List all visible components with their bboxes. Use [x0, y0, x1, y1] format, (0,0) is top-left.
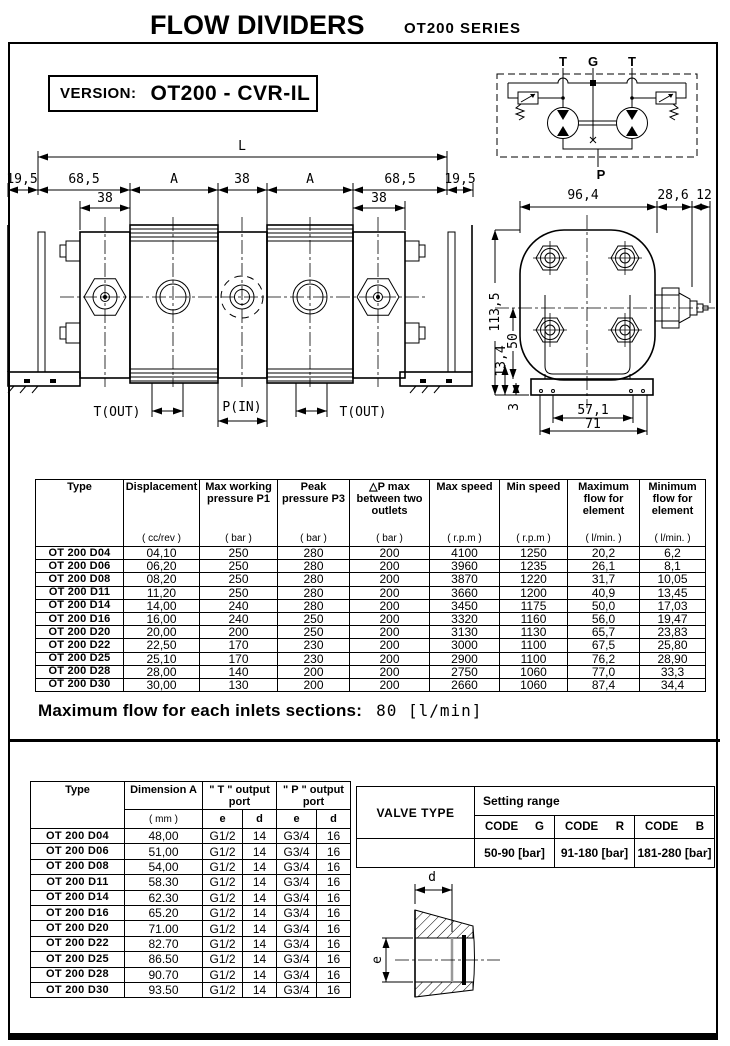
table-cell: G3/4 — [277, 967, 317, 982]
table-cell: G1/2 — [203, 829, 243, 844]
range-r-cell: 91-180 [bar] — [555, 839, 635, 868]
table-cell: G1/2 — [203, 952, 243, 967]
port-label-t-out-right: T(OUT) — [340, 405, 387, 420]
table-row: OT 200 D0808,202502802003870122031,710,0… — [36, 573, 706, 586]
table-cell: G1/2 — [203, 890, 243, 905]
table-cell: 20,2 — [568, 547, 640, 560]
table-cell: G3/4 — [277, 890, 317, 905]
table-cell: 3870 — [430, 573, 500, 586]
table-cell: 65,7 — [568, 626, 640, 639]
table-row: OT 200 D0651,00G1/214G3/416 — [31, 844, 351, 859]
table-cell: G3/4 — [277, 952, 317, 967]
code-g-cell: CODEG — [475, 816, 555, 839]
table-cell: 28,00 — [124, 665, 200, 678]
table-cell: 3320 — [430, 612, 500, 625]
dim-28-6: 28,6 — [657, 188, 688, 203]
table-cell: OT 200 D04 — [36, 547, 124, 560]
table-cell: OT 200 D30 — [36, 678, 124, 691]
dim-68-5-left: 68,5 — [68, 172, 99, 187]
schematic-port-p: P — [597, 167, 606, 182]
table-cell: 76,2 — [568, 652, 640, 665]
table-cell: 200 — [350, 626, 430, 639]
side-view-drawing: 96,4 28,6 12 — [483, 183, 723, 448]
table-cell: G1/2 — [203, 921, 243, 936]
table-cell: 30,00 — [124, 678, 200, 691]
table-cell: OT 200 D28 — [31, 967, 125, 982]
table-cell: OT 200 D30 — [31, 982, 125, 997]
table-cell: 14 — [243, 844, 277, 859]
table-cell: OT 200 D11 — [36, 586, 124, 599]
table-cell: 33,3 — [640, 665, 706, 678]
table-cell: 28,90 — [640, 652, 706, 665]
dim-68-5-right: 68,5 — [384, 172, 415, 187]
table-cell: OT 200 D28 — [36, 665, 124, 678]
table-cell: 250 — [200, 560, 278, 573]
table-cell: 65.20 — [125, 905, 203, 920]
table-cell: 16,00 — [124, 612, 200, 625]
table-cell: 40,9 — [568, 586, 640, 599]
table-cell: G3/4 — [277, 982, 317, 997]
table-cell: 16 — [317, 952, 351, 967]
table-cell: 2660 — [430, 678, 500, 691]
series-title: OT200 SERIES — [404, 20, 521, 37]
table-cell: G3/4 — [277, 844, 317, 859]
dim-col-mm: ( mm ) — [125, 810, 203, 829]
table-row: OT 200 D3093.50G1/214G3/416 — [31, 982, 351, 997]
valve-type-title: VALVE TYPE — [357, 787, 475, 839]
table-cell: OT 200 D20 — [36, 626, 124, 639]
range-b-cell: 181-280 [bar] — [635, 839, 715, 868]
dim-a-left: A — [170, 172, 178, 187]
table-cell: 1060 — [500, 665, 568, 678]
table-cell: OT 200 D11 — [31, 875, 125, 890]
table-cell: 14 — [243, 905, 277, 920]
section-divider — [8, 739, 720, 742]
code-b-cell: CODEB — [635, 816, 715, 839]
valve-ranges-row: 50-90 [bar] 91-180 [bar] 181-280 [bar] — [357, 839, 715, 868]
table-cell: OT 200 D08 — [31, 859, 125, 874]
table-cell: 8,1 — [640, 560, 706, 573]
table-row: OT 200 D2222,501702302003000110067,525,8… — [36, 639, 706, 652]
table-cell: 3450 — [430, 599, 500, 612]
table-cell: 170 — [200, 639, 278, 652]
table-cell: OT 200 D04 — [31, 829, 125, 844]
table-cell: 280 — [278, 560, 350, 573]
valve-type-table: VALVE TYPE Setting range CODEG CODER COD… — [356, 786, 715, 868]
table-cell: 250 — [278, 626, 350, 639]
table-cell: 56,0 — [568, 612, 640, 625]
datasheet-page: FLOW DIVIDERS OT200 SERIES VERSION: OT20… — [0, 0, 730, 1046]
table-row: OT 200 D1414,002402802003450117550,017,0… — [36, 599, 706, 612]
table-row: OT 200 D1665.20G1/214G3/416 — [31, 905, 351, 920]
table-cell: 26,1 — [568, 560, 640, 573]
table-cell: 250 — [200, 586, 278, 599]
version-label: VERSION: — [60, 85, 137, 102]
schematic-port-t-right: T — [628, 54, 636, 69]
page-title: FLOW DIVIDERS — [150, 10, 365, 41]
table-cell: 14 — [243, 890, 277, 905]
table-cell: 48,00 — [125, 829, 203, 844]
table-cell: OT 200 D06 — [31, 844, 125, 859]
port-section-drawing: d e — [370, 866, 570, 1021]
col-header-max-working-pressure: Max working pressure P1( bar ) — [200, 480, 278, 547]
max-flow-note: Maximum flow for each inlets sections: 8… — [38, 701, 482, 721]
table-cell: 230 — [278, 652, 350, 665]
table-row: OT 200 D2586.50G1/214G3/416 — [31, 952, 351, 967]
table-cell: 250 — [200, 573, 278, 586]
table-cell: 67,5 — [568, 639, 640, 652]
table-cell: 16 — [317, 982, 351, 997]
table-cell: 62.30 — [125, 890, 203, 905]
table-cell: 4100 — [430, 547, 500, 560]
table-cell: G1/2 — [203, 875, 243, 890]
table-cell: 200 — [350, 547, 430, 560]
dim-113-5: 113,5 — [488, 292, 503, 331]
col-header-min-speed: Min speed( r.p.m ) — [500, 480, 568, 547]
dim-19-5-right: 19,5 — [444, 172, 475, 187]
table-cell: G3/4 — [277, 875, 317, 890]
dim-col-p-d: d — [317, 810, 351, 829]
schematic-port-g: G — [588, 54, 598, 69]
table-cell: 13,45 — [640, 586, 706, 599]
table-row: OT 200 D1111,202502802003660120040,913,4… — [36, 586, 706, 599]
table-cell: 200 — [350, 599, 430, 612]
table-cell: 10,05 — [640, 573, 706, 586]
table-cell: 1220 — [500, 573, 568, 586]
table-cell: OT 200 D14 — [36, 599, 124, 612]
dim-a-right: A — [306, 172, 314, 187]
table-cell: 280 — [278, 586, 350, 599]
table-cell: 170 — [200, 652, 278, 665]
dim-38-left: 38 — [97, 191, 113, 206]
table-cell: 14 — [243, 921, 277, 936]
table-cell: 86.50 — [125, 952, 203, 967]
table-cell: OT 200 D22 — [36, 639, 124, 652]
table-cell: 3000 — [430, 639, 500, 652]
table-cell: 280 — [278, 547, 350, 560]
dim-3: 3 — [507, 403, 522, 411]
table-cell: 20,00 — [124, 626, 200, 639]
table-cell: 1175 — [500, 599, 568, 612]
dim-19-5-left: 19,5 — [6, 172, 37, 187]
table-cell: 16 — [317, 921, 351, 936]
table-cell: OT 200 D14 — [31, 890, 125, 905]
table-cell: 23,83 — [640, 626, 706, 639]
table-cell: 71.00 — [125, 921, 203, 936]
version-box: VERSION: OT200 - CVR-IL — [48, 75, 318, 112]
code-r-cell: CODER — [555, 816, 635, 839]
dim-col-t-port: " T " output port — [203, 782, 277, 810]
table-cell: 22,50 — [124, 639, 200, 652]
spec-table: Type Displacement( cc/rev ) Max working … — [35, 479, 706, 692]
front-view-drawing: L 19,5 68,5 A 38 A 68,5 19,5 38 38 — [0, 135, 480, 447]
table-row: OT 200 D2890.70G1/214G3/416 — [31, 967, 351, 982]
table-cell: 280 — [278, 573, 350, 586]
table-cell: 1100 — [500, 652, 568, 665]
max-flow-note-value: 80 [l/min] — [376, 701, 482, 720]
table-cell: 50,0 — [568, 599, 640, 612]
col-header-max-speed: Max speed( r.p.m ) — [430, 480, 500, 547]
table-cell: 250 — [200, 547, 278, 560]
table-cell: 1235 — [500, 560, 568, 573]
table-row: OT 200 D1616,002402502003320116056,019,4… — [36, 612, 706, 625]
dim-38-right: 38 — [371, 191, 387, 206]
table-cell: 14 — [243, 875, 277, 890]
table-cell: 25,10 — [124, 652, 200, 665]
dim-header-row-1: Type Dimension A " T " output port " P "… — [31, 782, 351, 810]
table-cell: 200 — [350, 586, 430, 599]
dimension-table: Type Dimension A " T " output port " P "… — [30, 781, 351, 998]
table-cell: 200 — [278, 665, 350, 678]
table-cell: 14 — [243, 967, 277, 982]
table-cell: 1060 — [500, 678, 568, 691]
table-row: OT 200 D2828,001402002002750106077,033,3 — [36, 665, 706, 678]
table-cell: 14 — [243, 952, 277, 967]
table-cell: G1/2 — [203, 844, 243, 859]
dim-12: 12 — [696, 188, 712, 203]
table-cell: 200 — [350, 612, 430, 625]
table-cell: OT 200 D25 — [36, 652, 124, 665]
table-cell: 3660 — [430, 586, 500, 599]
range-g-cell: 50-90 [bar] — [475, 839, 555, 868]
table-cell: 77,0 — [568, 665, 640, 678]
table-cell: 200 — [350, 678, 430, 691]
table-row: OT 200 D2525,101702302002900110076,228,9… — [36, 652, 706, 665]
table-cell: G1/2 — [203, 936, 243, 951]
dim-col-p-port: " P " output port — [277, 782, 351, 810]
table-cell: 14 — [243, 859, 277, 874]
table-cell: G3/4 — [277, 921, 317, 936]
table-cell: 230 — [278, 639, 350, 652]
table-row: OT 200 D3030,001302002002660106087,434,4 — [36, 678, 706, 691]
table-cell: 14,00 — [124, 599, 200, 612]
table-cell: 25,80 — [640, 639, 706, 652]
table-cell: 3960 — [430, 560, 500, 573]
table-cell: 04,10 — [124, 547, 200, 560]
table-cell: 19,47 — [640, 612, 706, 625]
table-cell: 200 — [278, 678, 350, 691]
table-cell: 87,4 — [568, 678, 640, 691]
table-cell: G1/2 — [203, 859, 243, 874]
table-cell: 240 — [200, 612, 278, 625]
table-cell: 08,20 — [124, 573, 200, 586]
dim-col-type: Type — [31, 782, 125, 829]
table-cell: 06,20 — [124, 560, 200, 573]
table-row: OT 200 D1158.30G1/214G3/416 — [31, 875, 351, 890]
table-row: OT 200 D0854,00G1/214G3/416 — [31, 859, 351, 874]
table-cell: 200 — [350, 639, 430, 652]
table-cell: G1/2 — [203, 982, 243, 997]
table-cell: 3130 — [430, 626, 500, 639]
dim-col-t-d: d — [243, 810, 277, 829]
col-header-displacement: Displacement( cc/rev ) — [124, 480, 200, 547]
valve-header-row: VALVE TYPE Setting range — [357, 787, 715, 816]
table-cell: 250 — [278, 612, 350, 625]
table-cell: 16 — [317, 875, 351, 890]
col-header-min-flow: Minimum flow for element( l/min. ) — [640, 480, 706, 547]
version-value: OT200 - CVR-IL — [151, 82, 311, 106]
table-cell: 140 — [200, 665, 278, 678]
port-dim-e: e — [370, 956, 385, 964]
table-cell: 93.50 — [125, 982, 203, 997]
table-cell: 14 — [243, 982, 277, 997]
table-cell: G3/4 — [277, 859, 317, 874]
table-row: OT 200 D0404,102502802004100125020,26,2 — [36, 547, 706, 560]
max-flow-note-label: Maximum flow for each inlets sections: — [38, 701, 362, 721]
table-cell: 1200 — [500, 586, 568, 599]
table-cell: 14 — [243, 936, 277, 951]
table-cell: 1160 — [500, 612, 568, 625]
dim-col-p-e: e — [277, 810, 317, 829]
table-cell: G3/4 — [277, 829, 317, 844]
table-cell: 1250 — [500, 547, 568, 560]
port-label-t-out-left: T(OUT) — [94, 405, 141, 420]
setting-range-label: Setting range — [475, 787, 715, 816]
table-cell: 240 — [200, 599, 278, 612]
dimension-table-body: OT 200 D0448,00G1/214G3/416OT 200 D0651,… — [31, 829, 351, 998]
table-cell: 200 — [350, 560, 430, 573]
table-cell: 6,2 — [640, 547, 706, 560]
table-cell: 16 — [317, 905, 351, 920]
table-row: OT 200 D2071.00G1/214G3/416 — [31, 921, 351, 936]
table-cell: OT 200 D25 — [31, 952, 125, 967]
table-cell: OT 200 D22 — [31, 936, 125, 951]
table-row: OT 200 D2282.70G1/214G3/416 — [31, 936, 351, 951]
dim-col-dimension-a: Dimension A — [125, 782, 203, 810]
table-cell: 11,20 — [124, 586, 200, 599]
table-row: OT 200 D0606,202502802003960123526,18,1 — [36, 560, 706, 573]
table-cell: 1100 — [500, 639, 568, 652]
table-cell: 90.70 — [125, 967, 203, 982]
table-cell: 34,4 — [640, 678, 706, 691]
table-cell: G3/4 — [277, 936, 317, 951]
port-dim-d: d — [428, 870, 436, 885]
dim-71: 71 — [585, 417, 601, 432]
table-cell: 2900 — [430, 652, 500, 665]
table-cell: G1/2 — [203, 967, 243, 982]
col-header-peak-pressure: Peak pressure P3( bar ) — [278, 480, 350, 547]
spec-header-row: Type Displacement( cc/rev ) Max working … — [36, 480, 706, 547]
table-cell: 16 — [317, 859, 351, 874]
col-header-max-flow: Maximum flow for element( l/min. ) — [568, 480, 640, 547]
table-row: OT 200 D2020,002002502003130113065,723,8… — [36, 626, 706, 639]
table-cell: 16 — [317, 844, 351, 859]
dim-96-4: 96,4 — [567, 188, 598, 203]
table-cell: 14 — [243, 829, 277, 844]
dim-38-center: 38 — [234, 172, 250, 187]
table-cell: OT 200 D16 — [36, 612, 124, 625]
table-cell: 200 — [350, 573, 430, 586]
table-cell: 16 — [317, 936, 351, 951]
table-cell: 54,00 — [125, 859, 203, 874]
table-cell: OT 200 D16 — [31, 905, 125, 920]
table-cell: 82.70 — [125, 936, 203, 951]
table-cell: 280 — [278, 599, 350, 612]
table-cell: 16 — [317, 829, 351, 844]
port-label-p-in: P(IN) — [222, 400, 261, 415]
spec-table-body: OT 200 D0404,102502802004100125020,26,2O… — [36, 547, 706, 692]
table-cell: 17,03 — [640, 599, 706, 612]
valve-empty-cell — [357, 839, 475, 868]
table-cell: OT 200 D06 — [36, 560, 124, 573]
table-cell: 130 — [200, 678, 278, 691]
table-row: OT 200 D0448,00G1/214G3/416 — [31, 829, 351, 844]
dim-13-4: 13,4 — [494, 345, 509, 376]
table-cell: 1130 — [500, 626, 568, 639]
table-cell: 51,00 — [125, 844, 203, 859]
table-cell: 200 — [200, 626, 278, 639]
table-cell: 31,7 — [568, 573, 640, 586]
table-cell: 200 — [350, 665, 430, 678]
table-cell: 58.30 — [125, 875, 203, 890]
table-row: OT 200 D1462.30G1/214G3/416 — [31, 890, 351, 905]
table-cell: G1/2 — [203, 905, 243, 920]
table-cell: OT 200 D08 — [36, 573, 124, 586]
dim-l: L — [238, 139, 246, 154]
col-header-type: Type — [36, 480, 124, 547]
dim-col-t-e: e — [203, 810, 243, 829]
col-header-delta-p-max: △P max between two outlets( bar ) — [350, 480, 430, 547]
table-cell: 200 — [350, 652, 430, 665]
table-cell: G3/4 — [277, 905, 317, 920]
table-cell: 2750 — [430, 665, 500, 678]
table-cell: 16 — [317, 967, 351, 982]
table-cell: OT 200 D20 — [31, 921, 125, 936]
dim-57-1: 57,1 — [577, 403, 608, 418]
table-cell: 16 — [317, 890, 351, 905]
schematic-port-t-left: T — [559, 54, 567, 69]
